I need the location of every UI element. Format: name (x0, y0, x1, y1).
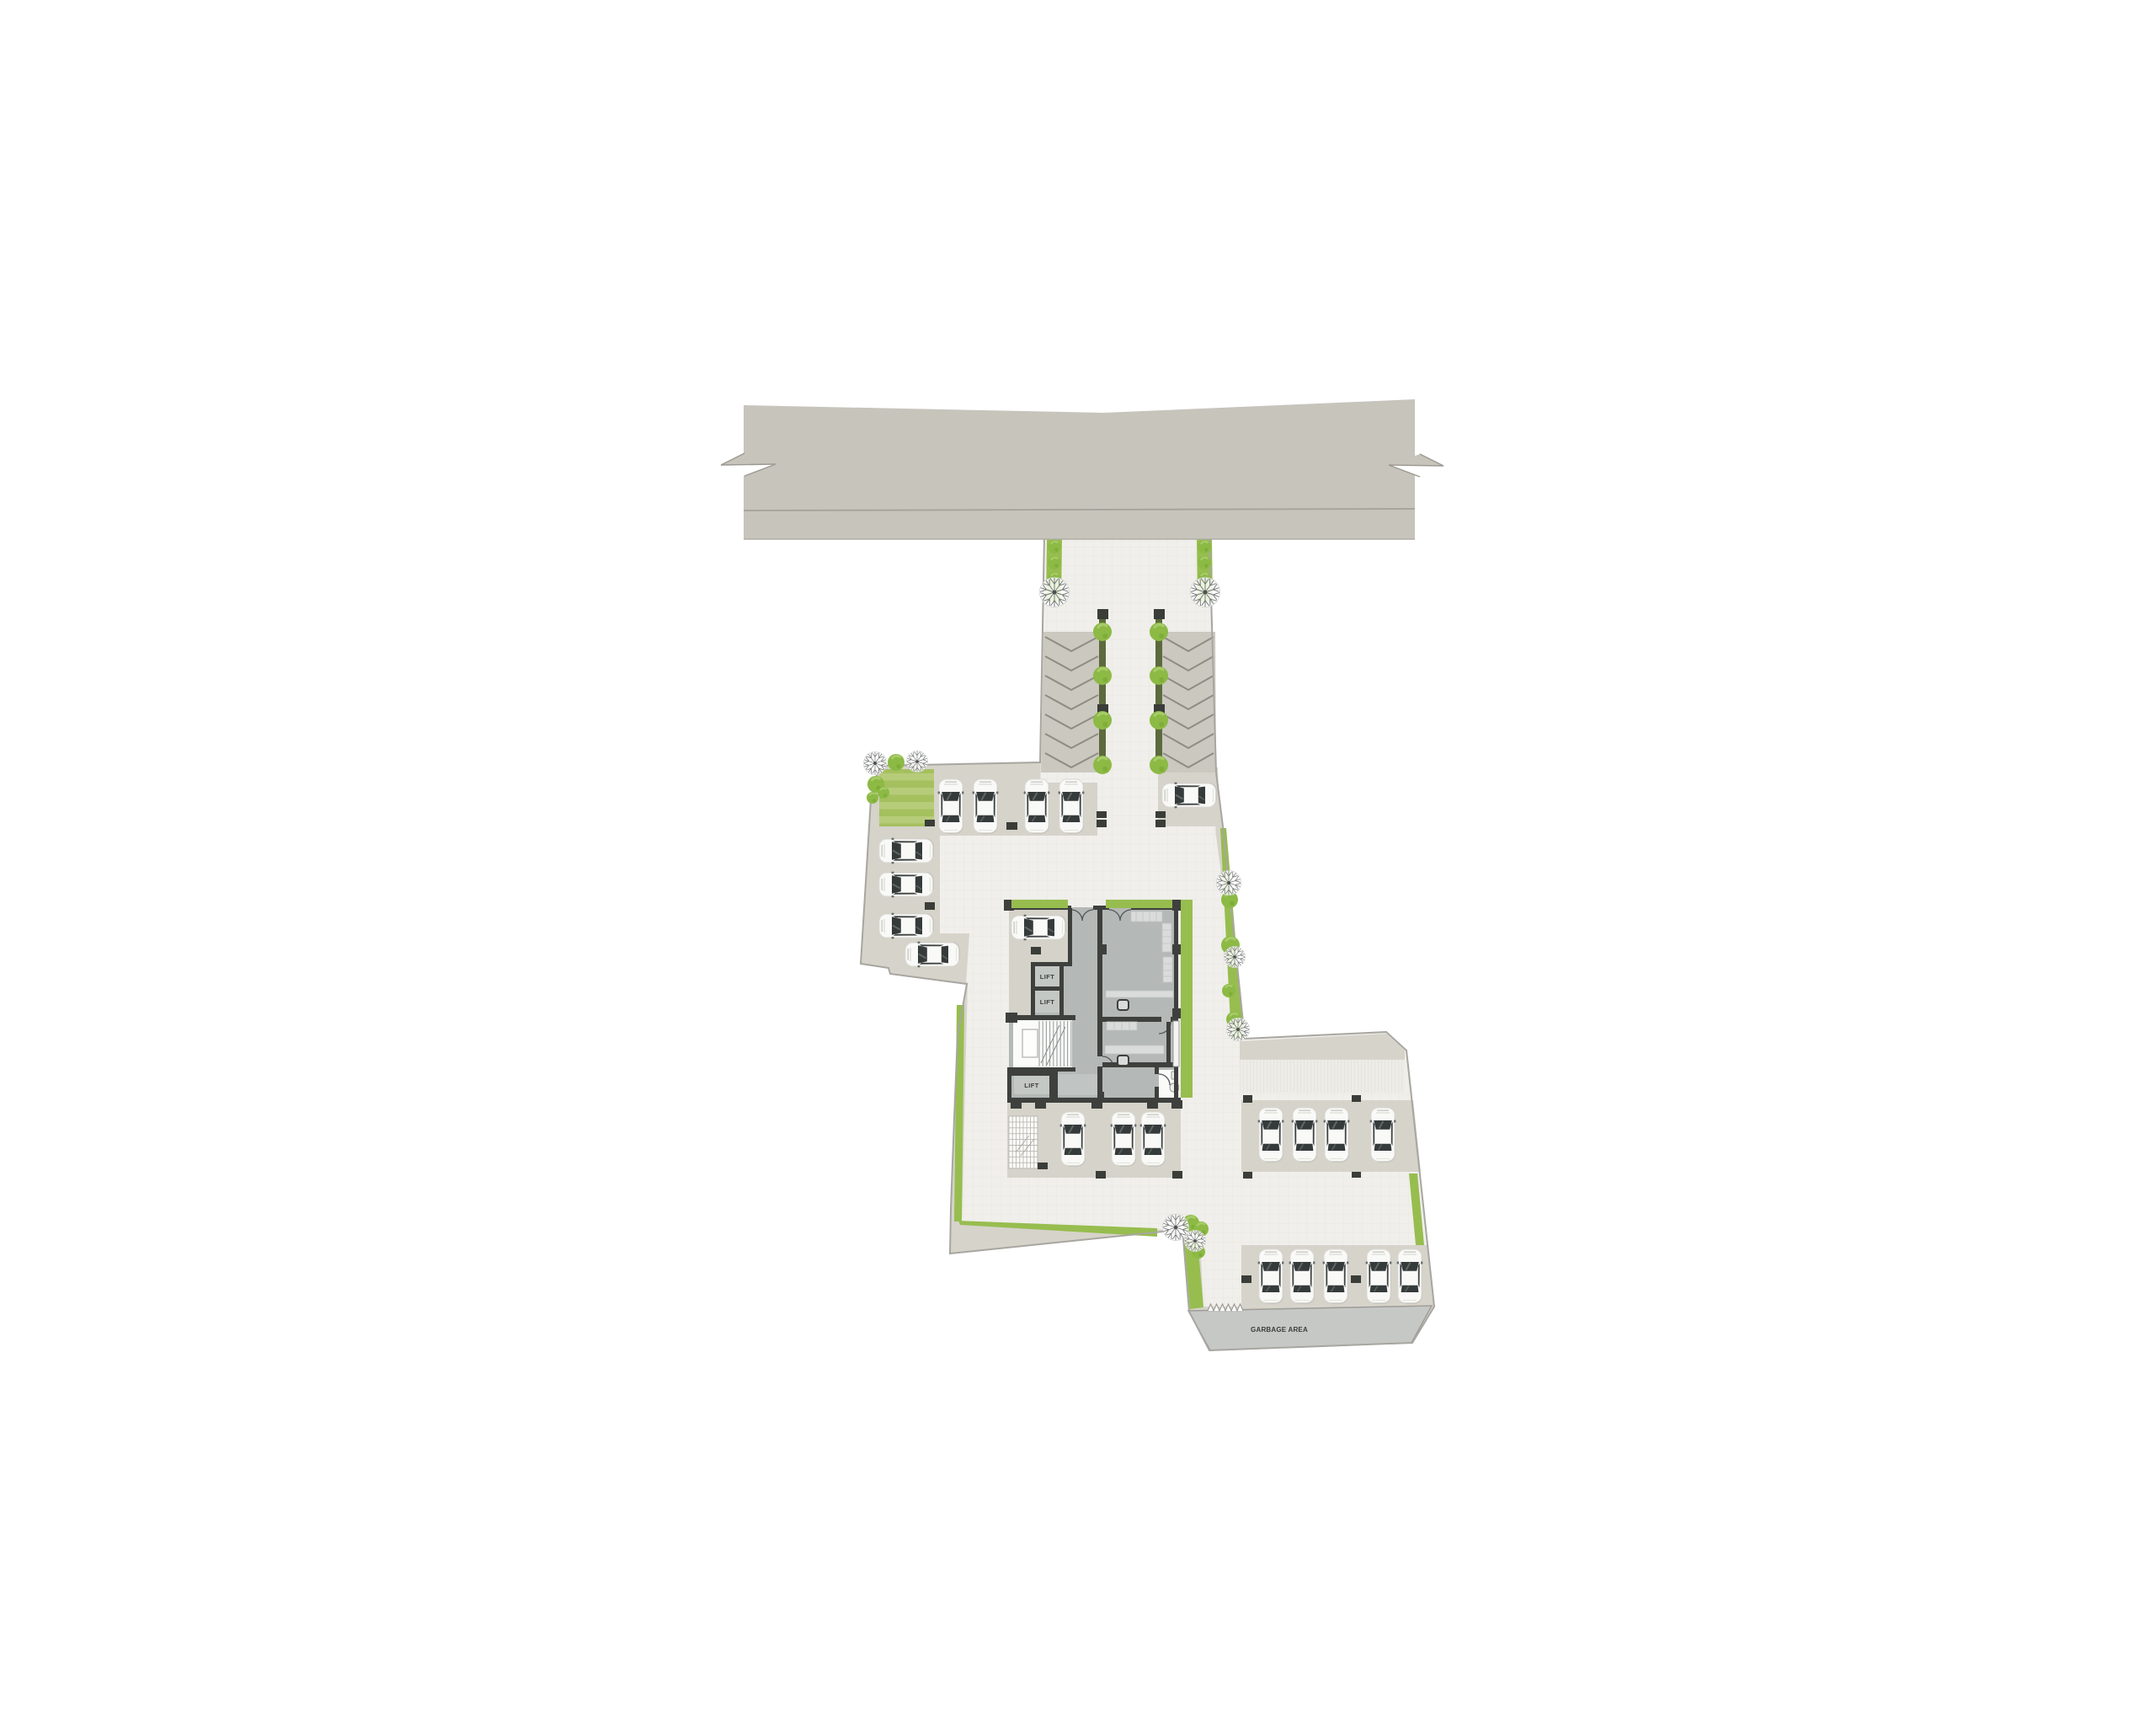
svg-text:LIFT: LIFT (1024, 1082, 1038, 1089)
svg-text:GARBAGE AREA: GARBAGE AREA (1251, 1326, 1308, 1334)
svg-text:LIFT: LIFT (1040, 973, 1054, 981)
svg-text:LIFT: LIFT (1040, 998, 1054, 1006)
